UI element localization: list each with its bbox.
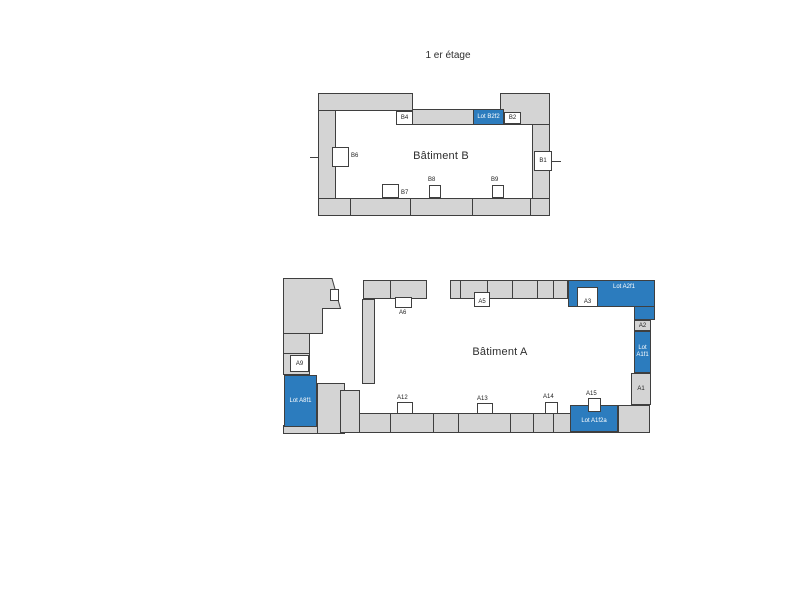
room-label-a12: A12 [397, 395, 408, 401]
bb-left-tick [310, 157, 318, 158]
lot-a2f1-extension[interactable] [634, 306, 655, 320]
bb-bottom-wall [318, 198, 550, 216]
bb-top-left-wall [318, 93, 413, 111]
building-a-name: Bâtiment A [440, 346, 560, 358]
bb-bottom-divider [350, 199, 351, 215]
door-icon-topleft [330, 289, 339, 301]
room-label-a15: A15 [586, 391, 597, 397]
floor-plan-canvas: 1 er étage Lot B2f2 B4 B2 B6 B1 B7 B8 B9… [0, 0, 792, 594]
door-icon-b8 [429, 185, 441, 198]
ba-bottom-divider [433, 414, 434, 432]
room-a1: A1 [631, 373, 651, 405]
lot-label-a2f1: Lot A2f1 [598, 284, 650, 290]
ba-bottom-divider [458, 414, 459, 432]
room-a2: A2 [634, 320, 651, 331]
door-icon-b4: B4 [396, 111, 413, 125]
ba-bottom-right-block [618, 405, 650, 433]
door-icon-a9: A9 [290, 355, 309, 372]
door-icon-b7 [382, 184, 399, 198]
ba-bottom-left-block [340, 390, 360, 433]
room-label-b8: B8 [428, 177, 435, 183]
door-icon-a13 [477, 403, 493, 414]
ba-top-divider [512, 281, 513, 298]
ba-bottom-divider [533, 414, 534, 432]
room-label-a6: A6 [399, 310, 406, 316]
lot-a8f1[interactable]: Lot A8f1 [284, 375, 317, 427]
ba-bottom-divider [390, 414, 391, 432]
ba-top-divider [460, 281, 461, 298]
door-icon-a6 [395, 297, 412, 308]
ba-bottom-divider [553, 414, 554, 432]
door-icon-a3: A3 [577, 287, 598, 307]
door-icon-a14 [545, 402, 558, 414]
room-label-b6: B6 [351, 153, 358, 159]
door-icon-b6 [332, 147, 349, 167]
door-icon-a5: A5 [474, 292, 490, 307]
ba-top-divider [553, 281, 554, 298]
bb-right-tick [552, 161, 561, 162]
door-icon-b9 [492, 185, 504, 198]
lot-b2f2[interactable]: Lot B2f2 [473, 109, 504, 125]
building-b-name: Bâtiment B [378, 150, 504, 162]
ba-top-wall-a5 [450, 280, 568, 299]
bb-bottom-divider [530, 199, 531, 215]
bb-bottom-divider [410, 199, 411, 215]
room-label-b7: B7 [401, 190, 408, 196]
door-icon-b2: B2 [504, 112, 521, 124]
ba-top-divider [390, 281, 391, 298]
door-icon-a15 [588, 398, 601, 412]
room-label-a13: A13 [477, 396, 488, 402]
bb-bottom-divider [472, 199, 473, 215]
ba-middle-column [362, 299, 375, 384]
page-title: 1 er étage [398, 50, 498, 61]
lot-a1f1[interactable]: Lot A1f1 [634, 331, 651, 373]
room-label-a14: A14 [543, 394, 554, 400]
ba-bottom-divider [510, 414, 511, 432]
ba-left-divider [284, 353, 309, 354]
ba-top-divider [537, 281, 538, 298]
ba-top-left-wall [283, 278, 343, 335]
door-icon-b1: B1 [534, 151, 552, 171]
room-label-b9: B9 [491, 177, 498, 183]
door-icon-a12 [397, 402, 413, 414]
